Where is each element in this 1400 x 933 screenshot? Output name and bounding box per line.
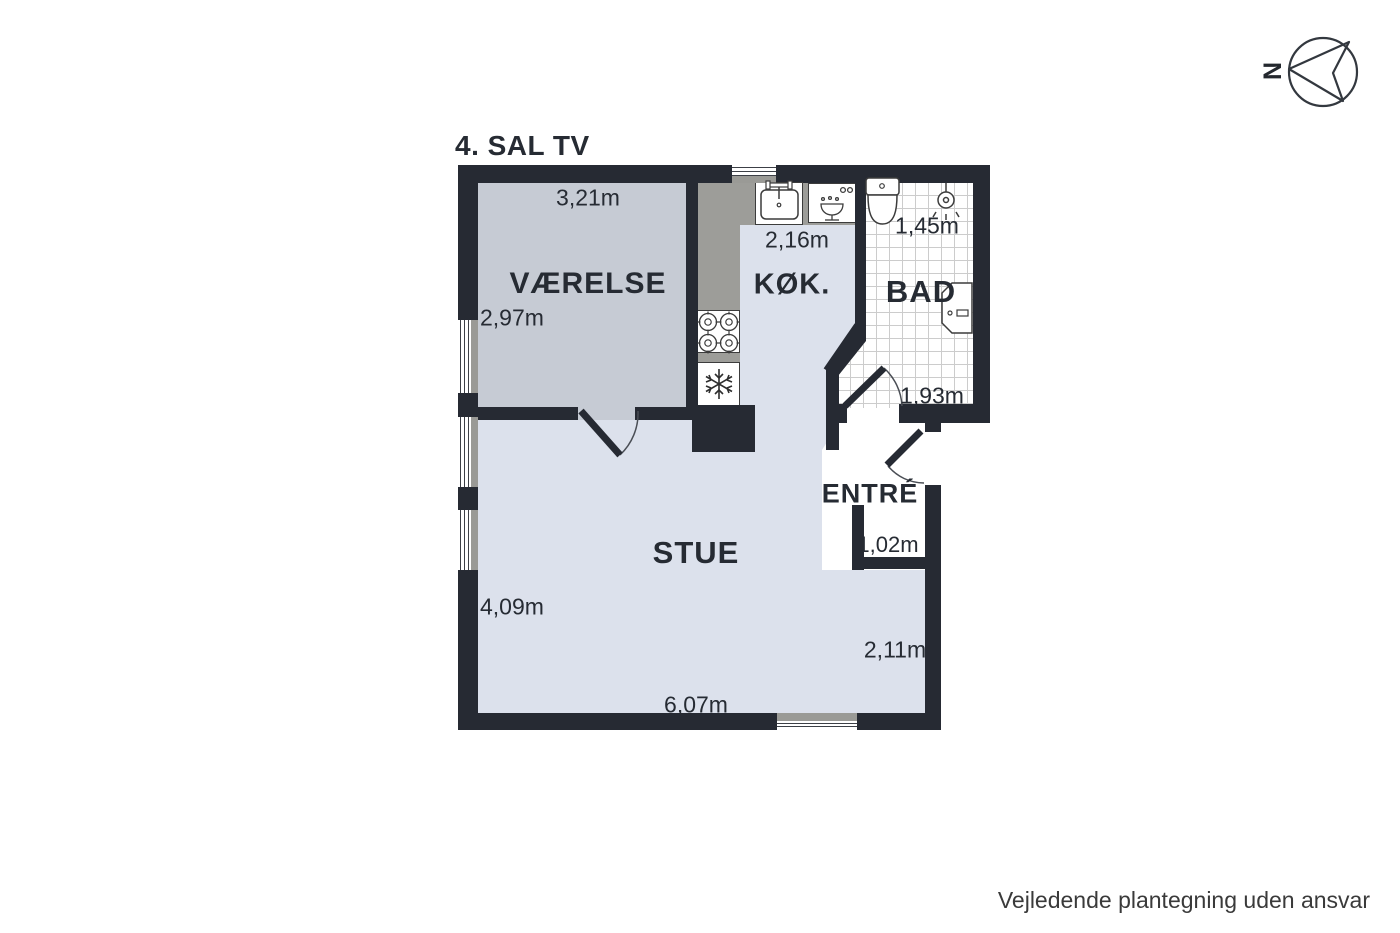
entre-label: ENTRÉ <box>822 479 919 510</box>
vaerelse-label: VÆRELSE <box>509 267 666 301</box>
kok-width-measurement: 2,16m <box>765 227 829 254</box>
bad-entry-measurement: 1,93m <box>900 383 964 410</box>
entrance-door <box>887 431 924 483</box>
bad-label: BAD <box>886 274 956 310</box>
compass-north-label: N <box>1259 62 1287 80</box>
freezer-snowflake-icon <box>706 369 732 399</box>
diagonal-wall <box>829 327 860 372</box>
dishwasher-icon <box>821 188 852 220</box>
vaerelse-door <box>581 411 638 455</box>
compass: N <box>1259 38 1357 106</box>
kitchen-sink-icon <box>761 181 798 219</box>
bad-door <box>845 368 902 406</box>
floor-plan-canvas: N 4. SAL TV VÆRELSE KØK. BAD ENTRÉ STUE … <box>0 0 1400 933</box>
detail-overlay: N <box>0 0 1400 933</box>
stue-right-depth-measurement: 2,11m <box>864 637 926 664</box>
entrance-door-leaf <box>887 431 921 465</box>
stue-width-measurement: 6,07m <box>664 692 728 719</box>
entre-nook-measurement: 1,02m <box>857 532 918 558</box>
stue-label: STUE <box>653 535 740 571</box>
vaerelse-door-arc <box>620 411 638 455</box>
faucet-icon <box>769 183 789 187</box>
kok-label: KØK. <box>754 269 831 302</box>
stove-burners-icon <box>698 312 740 354</box>
plan-title: 4. SAL TV <box>455 130 590 162</box>
vaerelse-width-measurement: 3,21m <box>556 185 620 212</box>
bad-width-measurement: 1,45m <box>895 213 959 240</box>
stue-depth-measurement: 4,09m <box>480 594 544 621</box>
vaerelse-depth-measurement: 2,97m <box>480 305 544 332</box>
bad-door-leaf <box>845 368 884 406</box>
compass-needle-icon <box>1289 42 1349 101</box>
vaerelse-door-leaf <box>581 411 620 455</box>
disclaimer-text: Vejledende plantegning uden ansvar <box>998 887 1370 914</box>
